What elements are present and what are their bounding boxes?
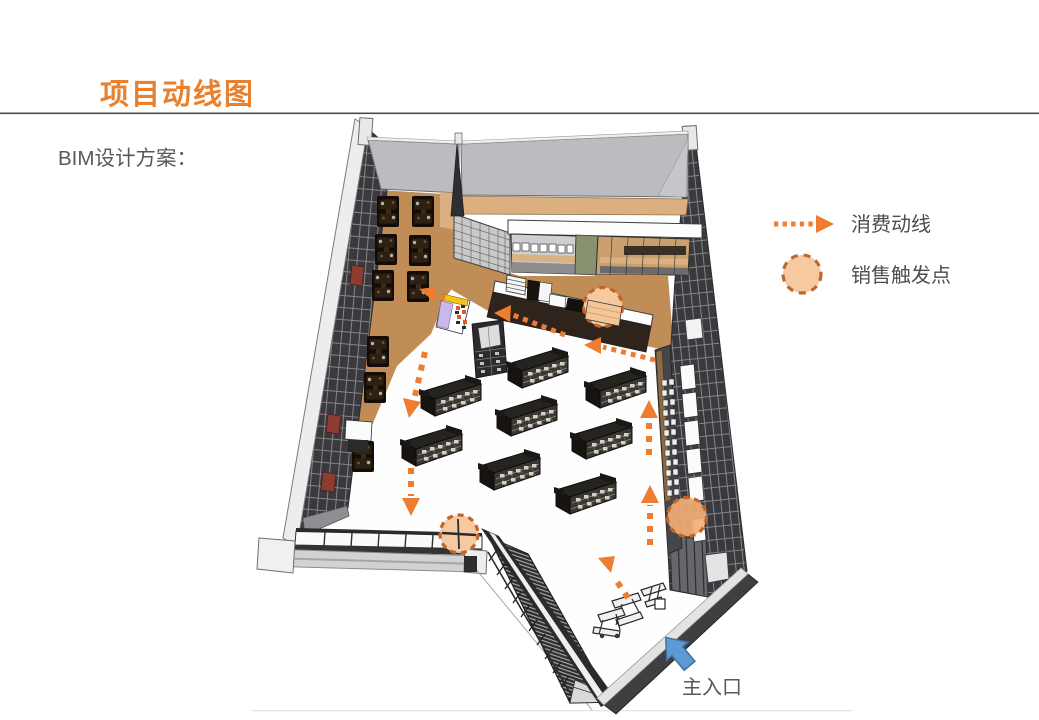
svg-text:项目动线图: 项目动线图 [100,78,255,111]
svg-text:消费动线: 消费动线 [851,213,931,236]
svg-text:主入口: 主入口 [682,676,742,699]
svg-text:BIM设计方案：: BIM设计方案： [58,147,197,170]
svg-text:销售触发点: 销售触发点 [851,264,951,287]
